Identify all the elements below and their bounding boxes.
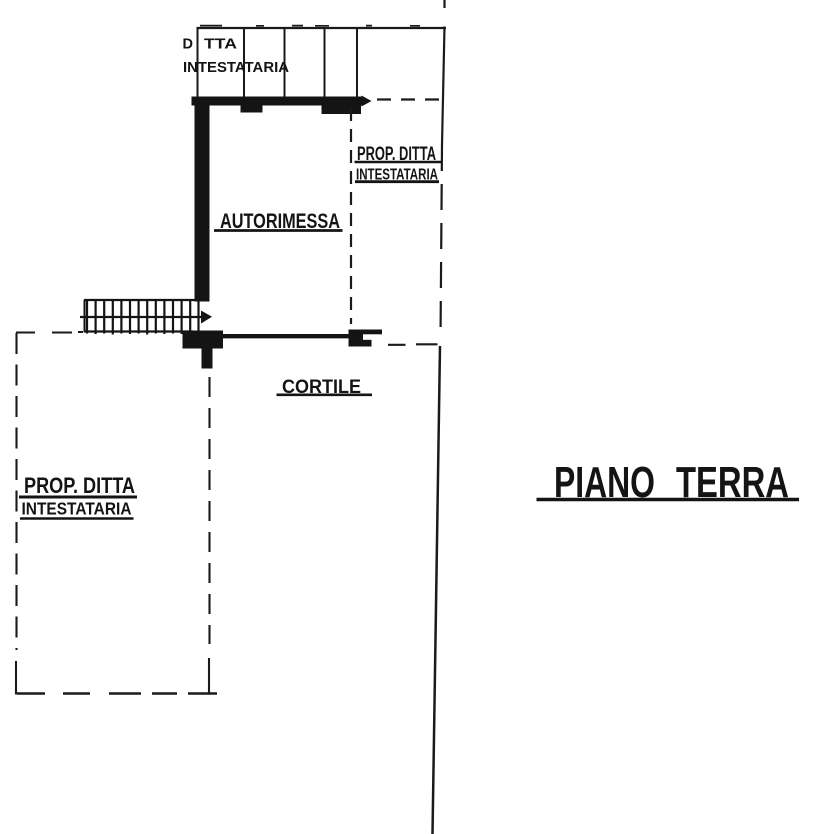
svg-text:PROP. DITTA: PROP. DITTA	[24, 473, 135, 498]
svg-text:INTESTATARIA: INTESTATARIA	[183, 60, 290, 76]
svg-text:D: D	[183, 37, 193, 53]
svg-text:TTA: TTA	[204, 37, 238, 53]
svg-text:INTESTATARIA: INTESTATARIA	[22, 499, 132, 519]
